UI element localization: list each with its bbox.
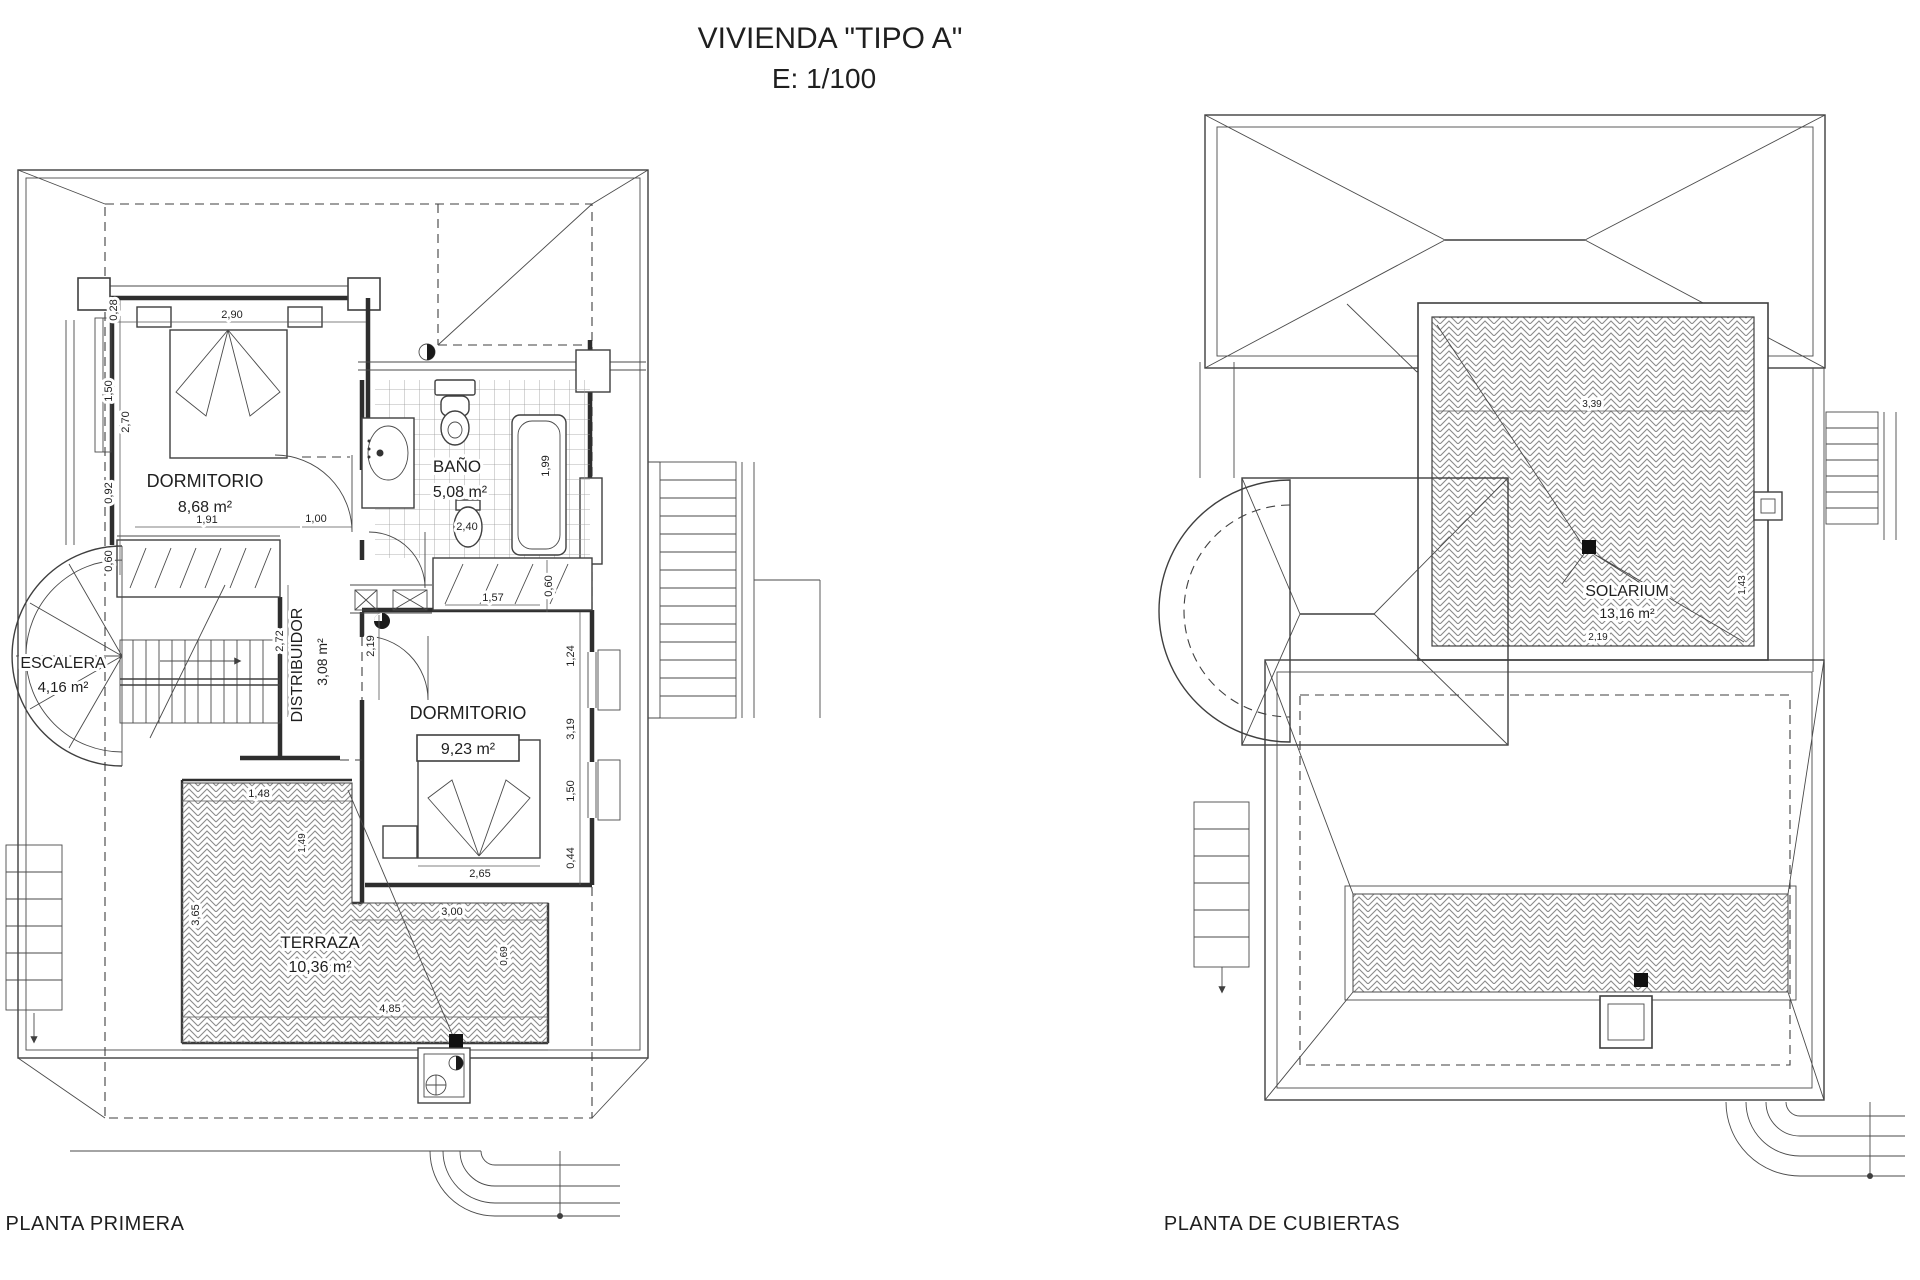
dim-1-43: 1,43 bbox=[1737, 575, 1748, 595]
dim-2-90: 2,90 bbox=[221, 309, 242, 321]
dim-3-39: 3,39 bbox=[1582, 399, 1602, 410]
dim-2-19: 2,19 bbox=[365, 635, 377, 656]
round-tower-roof bbox=[1159, 480, 1290, 742]
room-label-bano-area: 5,08 m² bbox=[433, 484, 488, 501]
dim-3-65: 3,65 bbox=[190, 904, 202, 925]
roof-vent bbox=[1754, 492, 1782, 520]
room-label-distribuidor-name: DISTRIBUIDOR bbox=[289, 608, 306, 723]
dim-1-50: 1,50 bbox=[103, 380, 115, 401]
sheet-scale: E: 1/100 bbox=[772, 63, 876, 94]
bath-closet bbox=[433, 558, 592, 610]
dim-1-48: 1,48 bbox=[248, 788, 269, 800]
caption-roof-plan: PLANTA DE CUBIERTAS bbox=[1164, 1213, 1400, 1235]
chimney-icon bbox=[1600, 996, 1652, 1048]
room-label-dormitorio1-name: DORMITORIO bbox=[147, 471, 264, 491]
dim-0-69: 0,69 bbox=[499, 946, 510, 966]
dim-0-60b: 0,60 bbox=[543, 575, 555, 596]
solarium-drain-marker bbox=[1582, 540, 1596, 554]
roof-steps-left bbox=[1194, 802, 1249, 992]
roof-stairs-right bbox=[1826, 412, 1896, 540]
dim-1-99: 1,99 bbox=[540, 455, 552, 476]
room-label-terraza-area: 10,36 m² bbox=[288, 959, 352, 976]
dim-0-28: 0,28 bbox=[108, 299, 120, 320]
dim-0-60: 0,60 bbox=[103, 550, 115, 571]
room-label-terraza-name: TERRAZA bbox=[280, 933, 360, 952]
dim-2-72: 2,72 bbox=[274, 630, 286, 651]
dim-3-00: 3,00 bbox=[441, 906, 462, 918]
dim-2-40: 2,40 bbox=[456, 521, 477, 533]
room-label-dormitorio2-area: 9,23 m² bbox=[441, 741, 496, 758]
curved-stairs-bottom bbox=[70, 1151, 620, 1219]
lower-hip-roof bbox=[1265, 660, 1824, 1100]
caption-first-floor: PLANTA PRIMERA bbox=[6, 1213, 185, 1235]
dim-3-19: 3,19 bbox=[565, 718, 577, 739]
first-floor-plan: DORMITORIO 8,68 m² BAÑO 5,08 m² ESCALERA… bbox=[6, 170, 820, 1219]
bathroom bbox=[350, 380, 592, 629]
roof-terrace-hatch bbox=[1353, 894, 1788, 992]
dim-0-44: 0,44 bbox=[565, 847, 577, 868]
room-label-solarium-area: 13,16 m² bbox=[1599, 605, 1655, 621]
exterior-stairs-right bbox=[648, 462, 820, 718]
roof-plan: SOLARIUM 13,16 m² 3,39 1,43 2,19 bbox=[1159, 115, 1905, 1179]
dim-1-24: 1,24 bbox=[565, 645, 577, 666]
dim-1-57: 1,57 bbox=[482, 592, 503, 604]
bathtub-icon bbox=[512, 415, 566, 555]
exterior-steps-left bbox=[6, 845, 62, 1042]
floor-plan-drawing: VIVIENDA "TIPO A" E: 1/100 bbox=[0, 0, 1920, 1280]
room-label-bano-name: BAÑO bbox=[433, 457, 481, 476]
room-label-solarium-name: SOLARIUM bbox=[1585, 583, 1669, 600]
dim-4-85: 4,85 bbox=[379, 1003, 400, 1015]
dim-2-65: 2,65 bbox=[469, 868, 490, 880]
spot-markers bbox=[419, 344, 435, 360]
drawing-sheet: VIVIENDA "TIPO A" E: 1/100 bbox=[0, 0, 1920, 1280]
sink-icon bbox=[362, 418, 414, 508]
utility-box bbox=[418, 1048, 470, 1103]
drain-marker bbox=[449, 1034, 463, 1048]
dim-0-92: 0,92 bbox=[103, 482, 115, 503]
dim-2-70: 2,70 bbox=[120, 411, 132, 432]
dim-1-91: 1,91 bbox=[196, 514, 217, 526]
dim-2-19-roof: 2,19 bbox=[1588, 632, 1608, 643]
room-label-distribuidor-area: 3,08 m² bbox=[314, 638, 330, 686]
room-label-dormitorio2-name: DORMITORIO bbox=[410, 703, 527, 723]
terrace-drain-marker bbox=[1634, 973, 1648, 987]
sheet-title: VIVIENDA "TIPO A" bbox=[698, 22, 963, 55]
dim-1-49: 1,49 bbox=[297, 833, 308, 853]
dim-1-50b: 1,50 bbox=[565, 780, 577, 801]
roof-curved-stairs bbox=[1726, 1102, 1905, 1179]
room-label-escalera-name: ESCALERA bbox=[20, 655, 106, 672]
dim-1-00: 1,00 bbox=[305, 513, 326, 525]
nightstand-icon bbox=[383, 826, 417, 858]
room-label-escalera-area: 4,16 m² bbox=[38, 679, 89, 696]
wardrobe-icon bbox=[117, 536, 280, 597]
bed-icon bbox=[170, 330, 287, 458]
